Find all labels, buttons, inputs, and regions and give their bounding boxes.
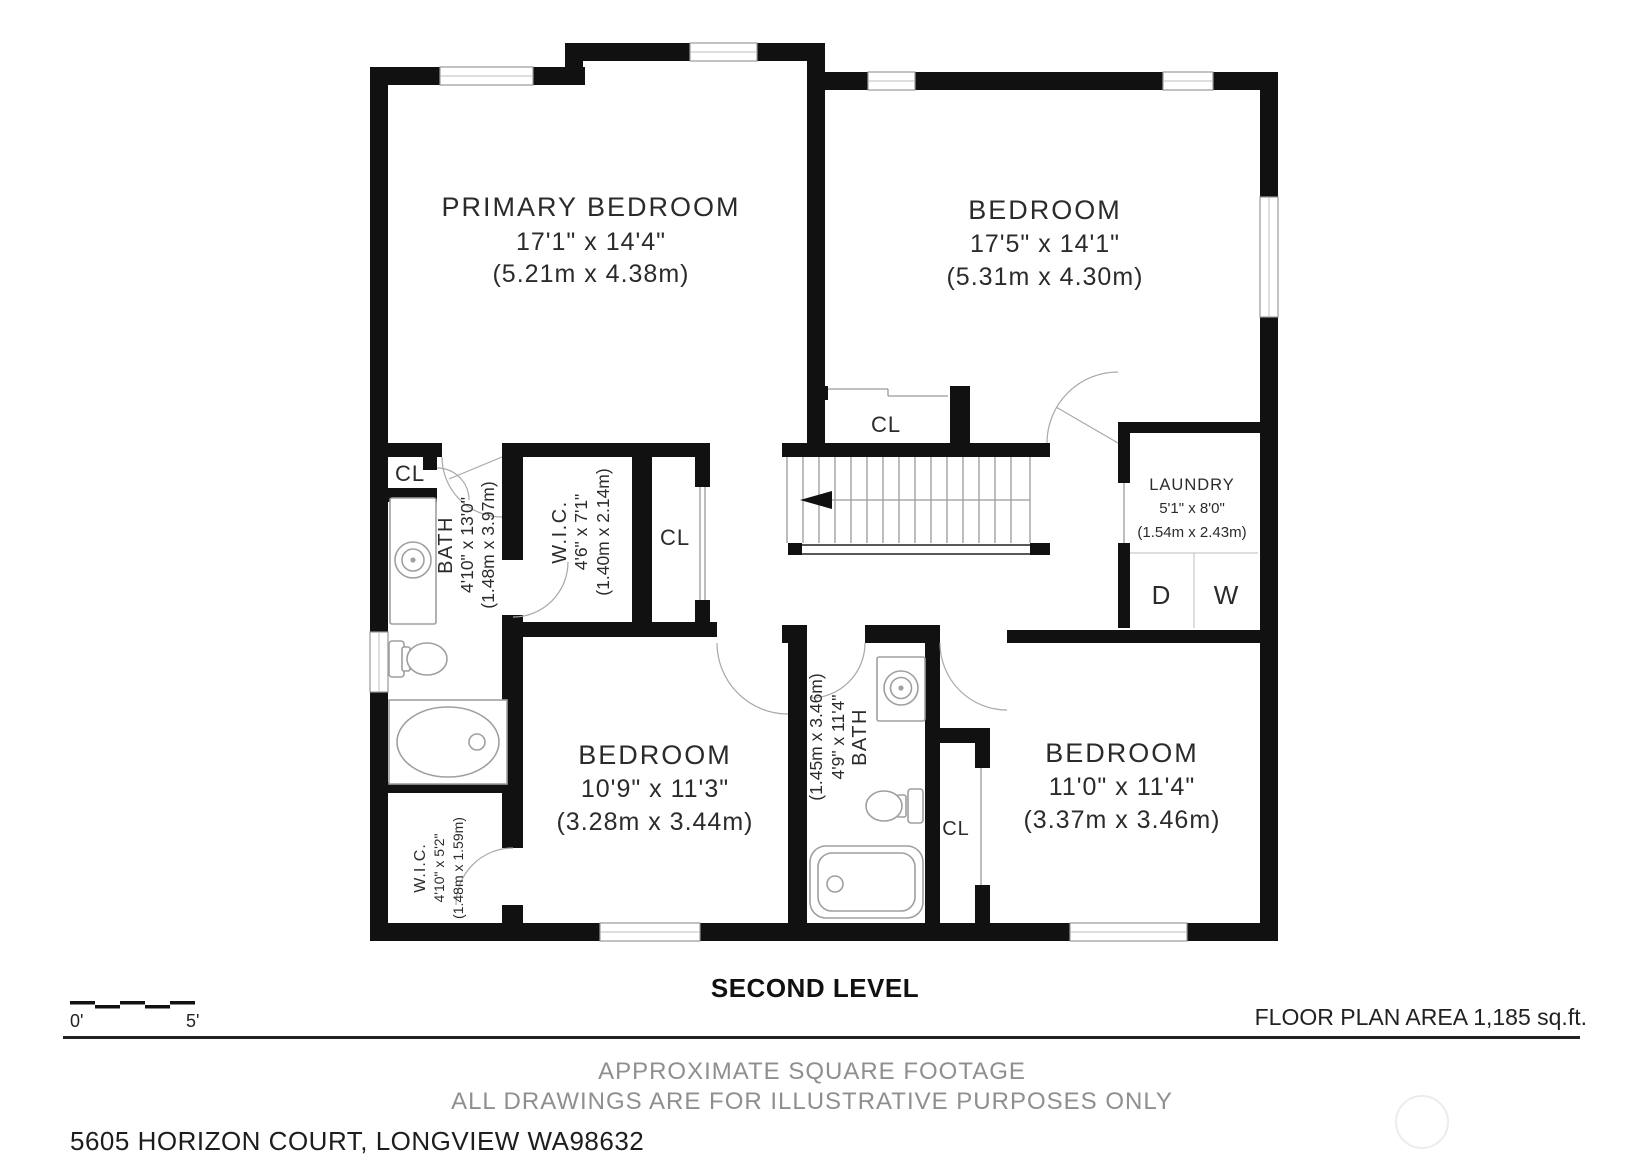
svg-text:4'9" x 11'4": 4'9" x 11'4" [828,695,848,780]
bathtub [810,846,923,918]
dryer-label: D [1152,580,1171,610]
svg-text:W.I.C.: W.I.C. [412,843,429,893]
svg-text:BATH: BATH [435,516,457,574]
staircase [787,457,1030,554]
property-address: 5605 HORIZON COURT, LONGVIEW WA98632 [70,1126,644,1156]
disclaimer-line-1: APPROXIMATE SQUARE FOOTAGE [598,1058,1026,1085]
svg-text:4'6" x 7'1": 4'6" x 7'1" [571,494,591,571]
closet-label: CL [871,412,901,437]
svg-text:PRIMARY BEDROOM: PRIMARY BEDROOM [441,192,740,222]
room-label-primary-bedroom: PRIMARY BEDROOM 17'1" x 14'4" (5.21m x 4… [441,192,740,288]
svg-text:BEDROOM: BEDROOM [578,740,732,770]
sink-vanity [390,498,436,624]
bedroom-bottom-right-door-arc [940,643,1007,710]
svg-text:BEDROOM: BEDROOM [1045,738,1199,768]
svg-text:(5.21m x 4.38m): (5.21m x 4.38m) [492,260,689,288]
watermark-circle [1396,1096,1448,1148]
stair-direction-arrow [800,491,832,509]
floor-plan-drawing: PRIMARY BEDROOM 17'1" x 14'4" (5.21m x 4… [0,0,1648,1164]
svg-text:BATH: BATH [849,708,871,766]
room-label-bath-left: BATH 4'10" x 13'0" (1.48m x 3.97m) [435,481,498,608]
window [868,72,915,90]
room-label-wic-bottom: W.I.C. 4'10" x 5'2" (1.48m x 1.59m) [412,817,466,919]
svg-text:11'0" x 11'4": 11'0" x 11'4" [1049,773,1195,801]
svg-text:LAUNDRY: LAUNDRY [1149,476,1235,494]
toilet [866,789,923,823]
window [440,67,533,85]
scale-bar: 0' 5' [70,1001,199,1031]
svg-text:4'10" x 5'2": 4'10" x 5'2" [431,833,447,902]
level-title: SECOND LEVEL [711,973,919,1003]
closet-bifold-door [828,389,948,396]
svg-text:(5.31m x 4.30m): (5.31m x 4.30m) [946,263,1143,291]
window [1070,923,1187,941]
closet-sliding-door [700,487,705,600]
svg-text:(3.28m x 3.44m): (3.28m x 3.44m) [556,808,753,836]
window [690,43,757,61]
closet-label: CL [942,818,970,840]
disclaimer-line-2: ALL DRAWINGS ARE FOR ILLUSTRATIVE PURPOS… [451,1088,1173,1115]
svg-text:(3.37m x 3.46m): (3.37m x 3.46m) [1023,806,1220,834]
svg-text:(1.48m x 3.97m): (1.48m x 3.97m) [478,481,498,608]
bathtub [389,700,507,784]
scale-end-label: 5' [186,1011,199,1031]
room-label-bath-middle: (1.45m x 3.46m) 4'9" x 11'4" BATH [806,673,871,800]
washer-label: W [1214,580,1239,610]
room-label-laundry: LAUNDRY 5'1" x 8'0" (1.54m x 2.43m) [1137,476,1246,541]
svg-text:(1.45m x 3.46m): (1.45m x 3.46m) [806,673,826,800]
floor-plan-area-note: FLOOR PLAN AREA 1,185 sq.ft. [1255,1004,1587,1030]
svg-text:(1.48m x 1.59m): (1.48m x 1.59m) [450,817,466,919]
floor-plan-page: PRIMARY BEDROOM 17'1" x 14'4" (5.21m x 4… [0,0,1648,1164]
sink-vanity [877,657,925,721]
bedroom-bottom-left-door-arc [717,643,788,714]
window [1260,197,1278,317]
footer: SECOND LEVEL 0' 5' FLOOR PLAN AREA 1,185… [63,973,1587,1156]
room-label-bedroom-top-right: BEDROOM 17'5" x 14'1" (5.31m x 4.30m) [946,195,1143,291]
scale-start-label: 0' [70,1011,83,1031]
svg-text:BEDROOM: BEDROOM [968,195,1122,225]
wic-top-door-arc [513,562,568,617]
window [370,632,388,692]
closet-label: CL [660,525,690,550]
svg-text:17'5" x 14'1": 17'5" x 14'1" [970,230,1120,258]
svg-text:10'9" x 11'3": 10'9" x 11'3" [581,775,729,803]
room-label-bedroom-bottom-right: BEDROOM 11'0" x 11'4" (3.37m x 3.46m) [1023,738,1220,834]
closet-label: CL [395,461,425,486]
svg-text:5'1" x 8'0": 5'1" x 8'0" [1159,500,1225,517]
svg-text:W.I.C.: W.I.C. [549,500,571,563]
room-label-bedroom-bottom-left: BEDROOM 10'9" x 11'3" (3.28m x 3.44m) [556,740,753,836]
svg-text:(1.54m x 2.43m): (1.54m x 2.43m) [1137,524,1246,541]
bedroom-top-right-door-leaf [1056,407,1118,443]
window [600,923,700,941]
room-label-wic-top: W.I.C. 4'6" x 7'1" (1.40m x 2.14m) [549,468,613,595]
washer-dryer-boxes [1130,553,1258,628]
svg-text:17'1" x 14'4": 17'1" x 14'4" [516,228,666,256]
window [1163,72,1213,90]
toilet [389,641,447,677]
svg-text:(1.40m x 2.14m): (1.40m x 2.14m) [593,468,613,595]
svg-text:4'10" x 13'0": 4'10" x 13'0" [457,497,477,593]
divider-rule [63,1036,1580,1039]
